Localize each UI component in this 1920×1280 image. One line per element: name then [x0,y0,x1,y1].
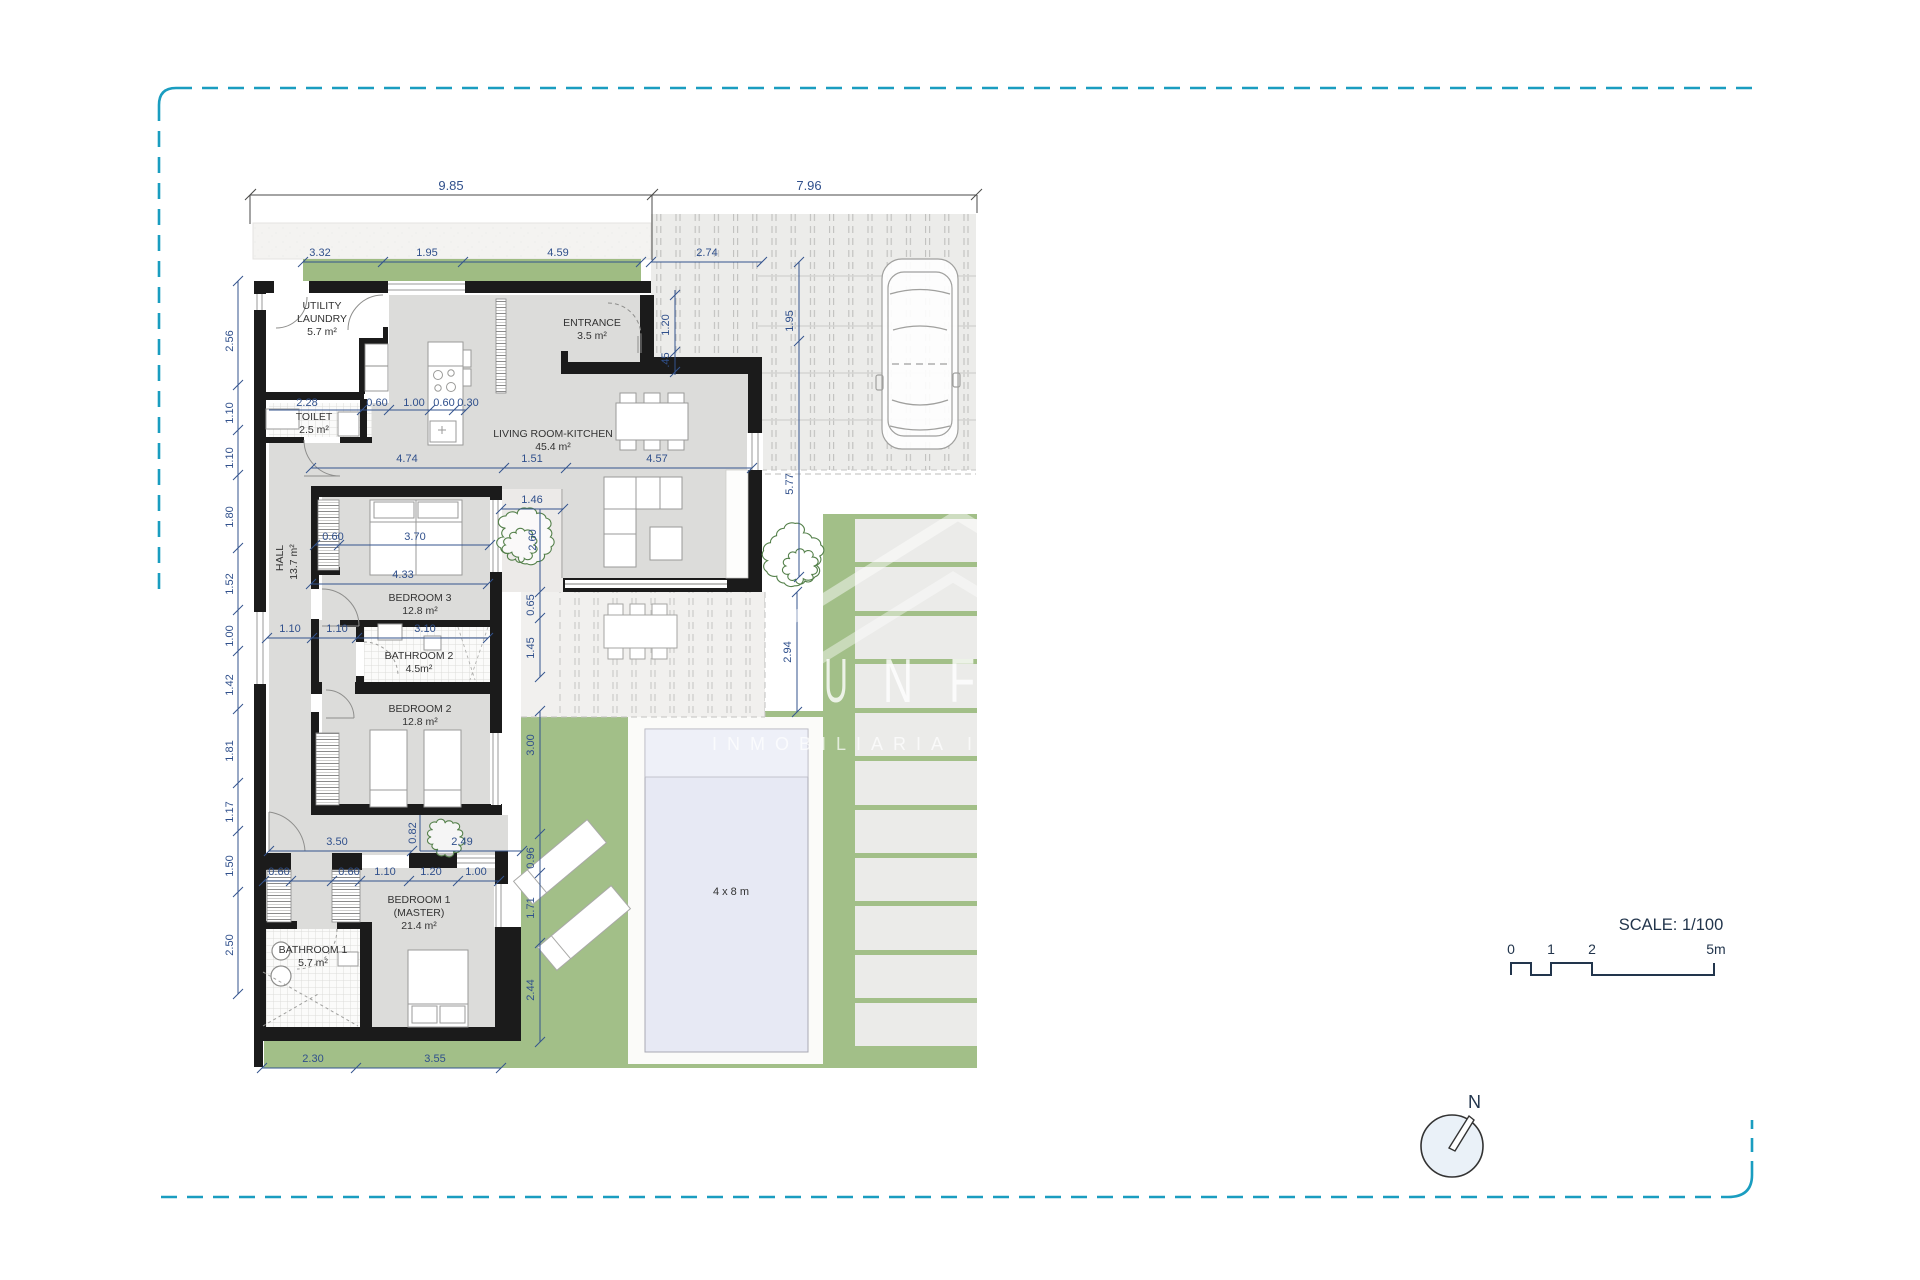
svg-text:1.10: 1.10 [279,623,300,635]
svg-text:N: N [883,647,913,716]
svg-text:HALL: HALL [274,545,286,571]
svg-text:21.4 m²: 21.4 m² [401,920,437,932]
svg-text:1.45: 1.45 [525,637,537,658]
svg-text:9.85: 9.85 [438,178,463,193]
svg-text:2.30: 2.30 [302,1053,323,1065]
svg-text:1.51: 1.51 [521,453,542,465]
svg-text:0: 0 [1507,941,1515,957]
svg-text:N: N [1468,1092,1481,1112]
svg-text:3.50: 3.50 [326,836,347,848]
svg-text:1.52: 1.52 [224,573,236,594]
svg-text:0.96: 0.96 [525,847,537,868]
svg-text:5.77: 5.77 [784,473,796,494]
svg-text:1.10: 1.10 [374,866,395,878]
svg-text:1.00: 1.00 [403,397,424,409]
svg-text:ENTRANCE: ENTRANCE [563,317,621,329]
svg-text:1.71: 1.71 [525,897,537,918]
svg-text:1.10: 1.10 [326,623,347,635]
svg-text:UTILITY: UTILITY [302,300,341,312]
svg-text:2.5 m²: 2.5 m² [299,424,329,436]
svg-text:1.00: 1.00 [465,866,486,878]
svg-text:2.94: 2.94 [782,641,794,662]
svg-text:13.7 m²: 13.7 m² [288,544,300,580]
svg-text:TOILET: TOILET [296,411,333,423]
svg-text:0.60: 0.60 [322,531,343,543]
svg-text:BATHROOM 1: BATHROOM 1 [279,944,348,956]
svg-text:F: F [949,647,975,716]
svg-text:0.60: 0.60 [433,397,454,409]
svg-text:1.10: 1.10 [224,447,236,468]
svg-text:BEDROOM 2: BEDROOM 2 [388,703,451,715]
svg-text:(MASTER): (MASTER) [394,907,445,919]
svg-text:1.10: 1.10 [224,402,236,423]
svg-text:2.74: 2.74 [696,247,717,259]
svg-text:5.7 m²: 5.7 m² [307,326,337,338]
svg-text:0.60: 0.60 [366,397,387,409]
svg-text:1.95: 1.95 [416,247,437,259]
svg-text:2: 2 [1588,941,1596,957]
svg-text:0.60: 0.60 [268,866,289,878]
svg-text:3.32: 3.32 [309,247,330,259]
svg-text:LIVING ROOM-KITCHEN: LIVING ROOM-KITCHEN [493,428,613,440]
svg-text:2.56: 2.56 [224,330,236,351]
svg-text:7.96: 7.96 [796,178,821,193]
svg-text:5m: 5m [1706,941,1725,957]
svg-text:1.00: 1.00 [224,625,236,646]
svg-text:1.20: 1.20 [660,314,672,335]
svg-text:1.80: 1.80 [224,506,236,527]
svg-text:3.70: 3.70 [404,531,425,543]
svg-text:1.42: 1.42 [224,674,236,695]
svg-text:1.46: 1.46 [521,494,542,506]
svg-text:LAUNDRY: LAUNDRY [297,313,347,325]
svg-text:1.17: 1.17 [224,801,236,822]
svg-text:SCALE: 1/100: SCALE: 1/100 [1619,916,1724,934]
svg-text:4 x 8 m: 4 x 8 m [713,886,749,898]
svg-text:2.49: 2.49 [451,836,472,848]
svg-text:4.57: 4.57 [646,453,667,465]
svg-text:2.44: 2.44 [525,979,537,1000]
svg-text:BEDROOM 3: BEDROOM 3 [388,592,451,604]
svg-text:2.50: 2.50 [224,934,236,955]
svg-text:4.59: 4.59 [547,247,568,259]
svg-text:U: U [824,647,848,716]
svg-text:1.50: 1.50 [224,855,236,876]
svg-text:4.74: 4.74 [396,453,417,465]
svg-text:1.81: 1.81 [224,740,236,761]
svg-text:0.60: 0.60 [338,866,359,878]
svg-text:12.8 m²: 12.8 m² [402,605,438,617]
svg-text:BATHROOM 2: BATHROOM 2 [385,650,454,662]
svg-text:BEDROOM 1: BEDROOM 1 [387,894,450,906]
svg-text:0.30: 0.30 [457,397,478,409]
svg-text:3.5 m²: 3.5 m² [577,330,607,342]
svg-text:45.4 m²: 45.4 m² [535,441,571,453]
svg-text:4.5m²: 4.5m² [406,663,433,675]
svg-text:1: 1 [1547,941,1555,957]
svg-text:0.65: 0.65 [525,594,537,615]
svg-text:2.60: 2.60 [527,529,539,550]
svg-text:12.8 m²: 12.8 m² [402,716,438,728]
svg-text:.45: .45 [660,352,672,367]
svg-text:3.00: 3.00 [525,734,537,755]
svg-text:0.82: 0.82 [407,822,419,843]
svg-text:3.10: 3.10 [414,623,435,635]
svg-text:2.28: 2.28 [296,397,317,409]
svg-text:1.20: 1.20 [420,866,441,878]
svg-text:4.33: 4.33 [392,569,413,581]
svg-text:INMOBILIARIA IN: INMOBILIARIA IN [712,734,1005,754]
svg-text:1.95: 1.95 [784,310,796,331]
svg-text:3.55: 3.55 [424,1053,445,1065]
svg-text:5.7 m²: 5.7 m² [298,957,328,969]
